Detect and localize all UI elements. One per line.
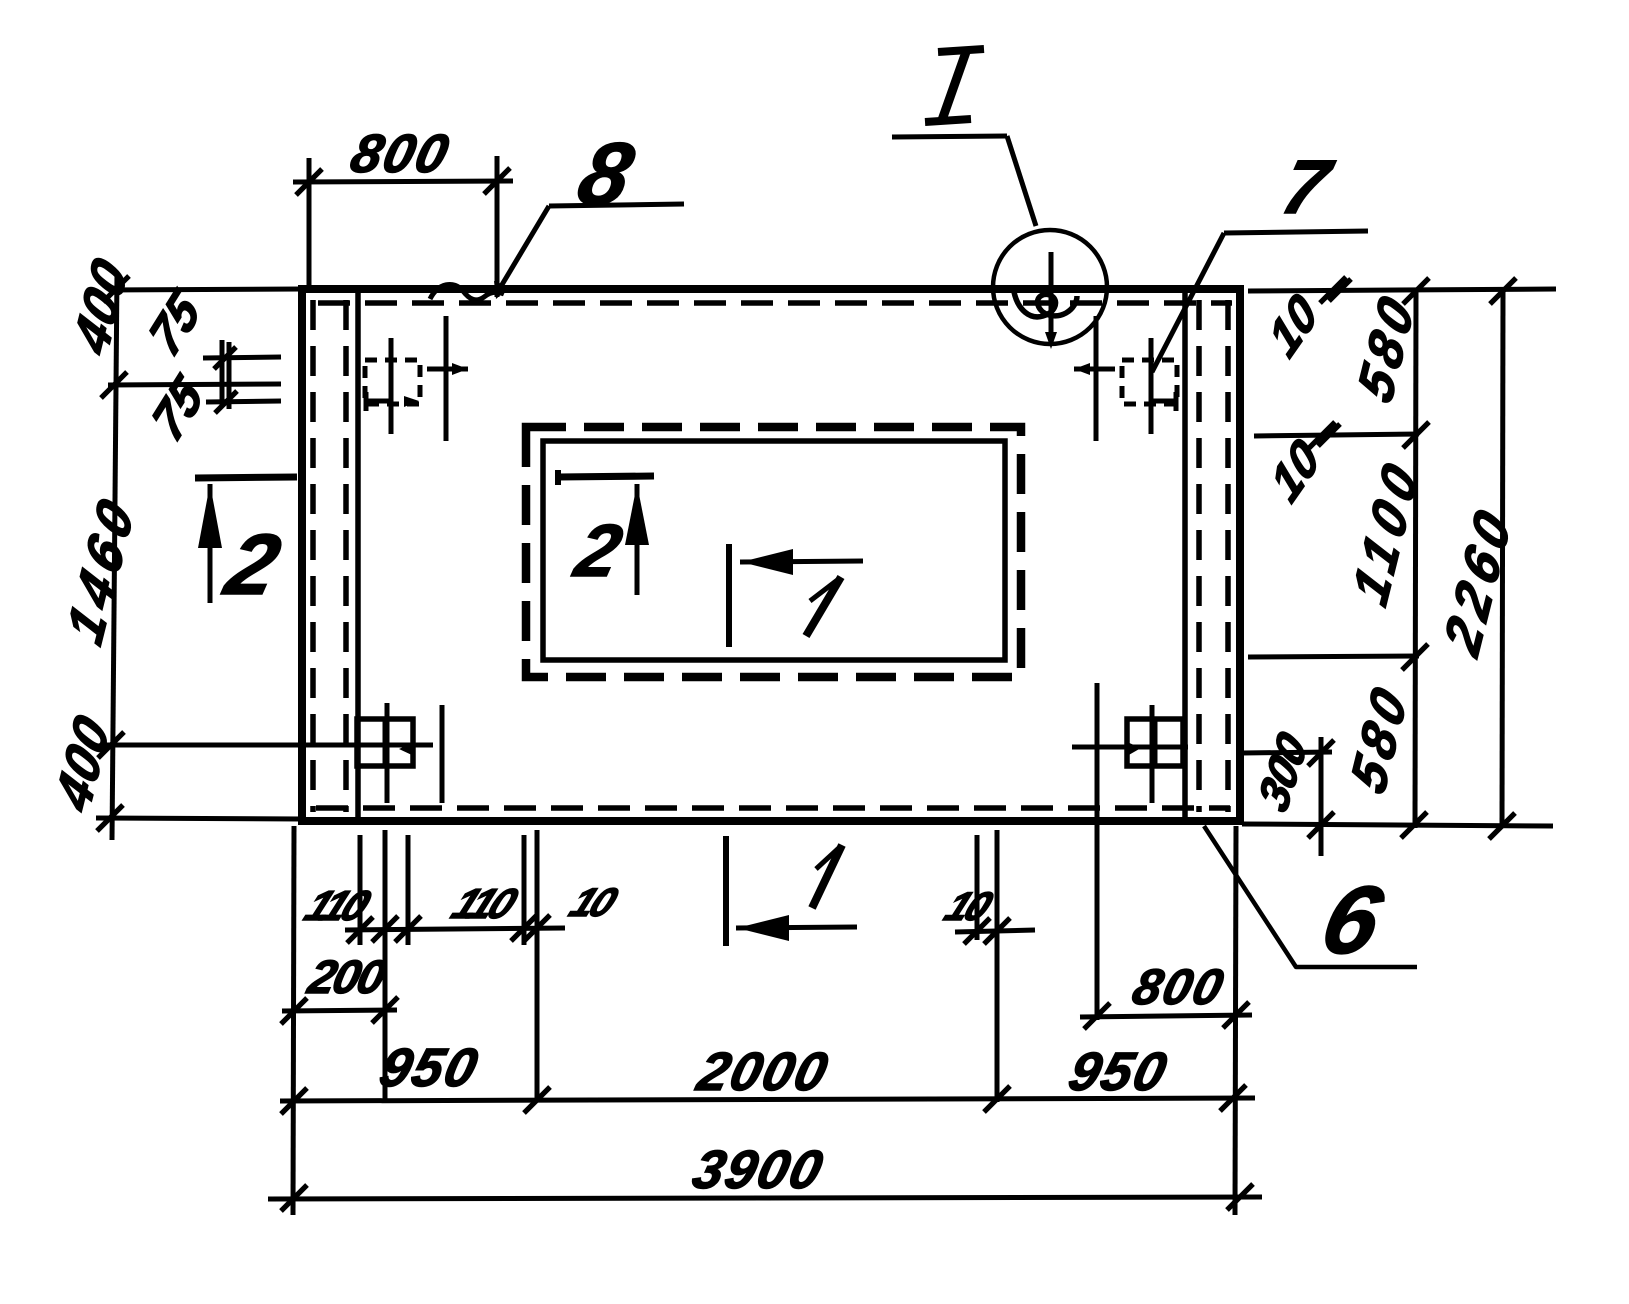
svg-text:200: 200 [303,950,391,1003]
svg-text:950: 950 [1063,1042,1174,1102]
svg-text:3900: 3900 [687,1140,830,1200]
svg-text:800: 800 [1127,959,1230,1015]
svg-text:2000: 2000 [691,1042,835,1102]
svg-text:800: 800 [345,124,456,184]
svg-text:950: 950 [374,1038,485,1098]
